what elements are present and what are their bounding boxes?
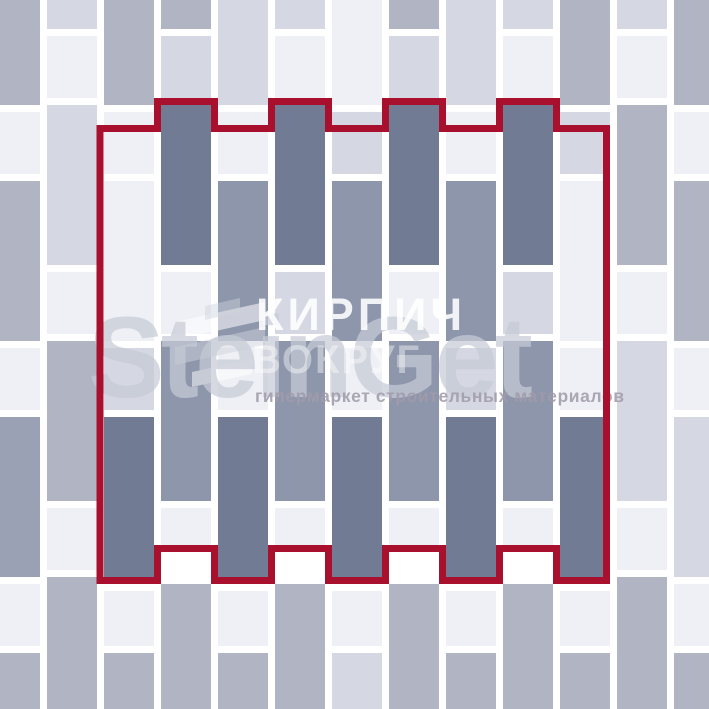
- brick: [104, 417, 154, 577]
- brick: [560, 417, 610, 577]
- brick: [389, 36, 439, 98]
- brick: [446, 0, 496, 105]
- brick: [218, 417, 268, 577]
- brick: [0, 653, 40, 709]
- brick: [161, 341, 211, 501]
- brick: [47, 508, 97, 570]
- brick: [275, 508, 325, 545]
- paving-pattern-diagram: SteinGet КИРПИЧ ВОКРУГ гипермаркет строи…: [0, 0, 709, 709]
- brick: [560, 112, 610, 174]
- brick: [674, 584, 709, 646]
- brick: [161, 508, 211, 545]
- brick: [275, 341, 325, 501]
- brick: [47, 0, 97, 29]
- brick: [218, 181, 268, 341]
- brick: [218, 653, 268, 709]
- brick: [275, 272, 325, 334]
- brick: [446, 348, 496, 410]
- brick: [104, 181, 154, 341]
- brick: [161, 272, 211, 334]
- brick: [47, 36, 97, 98]
- brick: [389, 0, 439, 29]
- brick: [104, 348, 154, 410]
- brick: [218, 348, 268, 410]
- brick: [275, 584, 325, 709]
- brick: [617, 36, 667, 98]
- brick: [674, 653, 709, 709]
- brick: [674, 181, 709, 341]
- brick: [275, 36, 325, 98]
- paving-pattern: [0, 0, 709, 709]
- brick: [617, 0, 667, 29]
- brick: [161, 584, 211, 709]
- brick: [0, 0, 40, 105]
- brick: [161, 105, 211, 265]
- brick: [332, 417, 382, 577]
- brick: [560, 653, 610, 709]
- brick: [503, 272, 553, 334]
- brick: [0, 348, 40, 410]
- brick: [503, 0, 553, 29]
- brick: [503, 341, 553, 501]
- brick: [332, 348, 382, 410]
- brick: [674, 348, 709, 410]
- brick: [446, 591, 496, 646]
- brick: [47, 272, 97, 334]
- brick: [389, 584, 439, 709]
- brick: [503, 508, 553, 545]
- brick: [104, 112, 154, 174]
- brick: [560, 348, 610, 410]
- brick: [218, 0, 268, 105]
- brick: [674, 417, 709, 577]
- brick: [47, 577, 97, 709]
- brick: [104, 0, 154, 105]
- brick: [503, 584, 553, 709]
- brick: [389, 105, 439, 265]
- brick: [674, 0, 709, 105]
- brick: [617, 105, 667, 265]
- brick: [503, 105, 553, 265]
- brick: [617, 577, 667, 709]
- brick: [446, 653, 496, 709]
- brick: [674, 112, 709, 174]
- brick: [0, 584, 40, 646]
- brick: [104, 653, 154, 709]
- brick: [332, 0, 382, 105]
- brick: [0, 181, 40, 341]
- brick: [560, 0, 610, 105]
- brick: [0, 112, 40, 174]
- brick: [503, 36, 553, 98]
- brick: [560, 181, 610, 341]
- brick: [218, 112, 268, 174]
- brick: [560, 591, 610, 646]
- brick: [275, 0, 325, 29]
- brick: [0, 417, 40, 577]
- brick: [446, 112, 496, 174]
- brick: [617, 508, 667, 570]
- brick: [161, 0, 211, 29]
- brick: [446, 417, 496, 577]
- brick: [47, 105, 97, 265]
- brick: [218, 591, 268, 646]
- brick: [617, 341, 667, 501]
- brick: [332, 591, 382, 646]
- brick: [389, 508, 439, 545]
- brick: [332, 112, 382, 174]
- brick: [47, 341, 97, 501]
- brick: [617, 272, 667, 334]
- brick: [161, 36, 211, 98]
- brick: [389, 272, 439, 334]
- brick: [389, 341, 439, 501]
- brick: [332, 653, 382, 709]
- brick: [275, 105, 325, 265]
- brick: [104, 591, 154, 646]
- brick: [332, 181, 382, 341]
- brick: [446, 181, 496, 341]
